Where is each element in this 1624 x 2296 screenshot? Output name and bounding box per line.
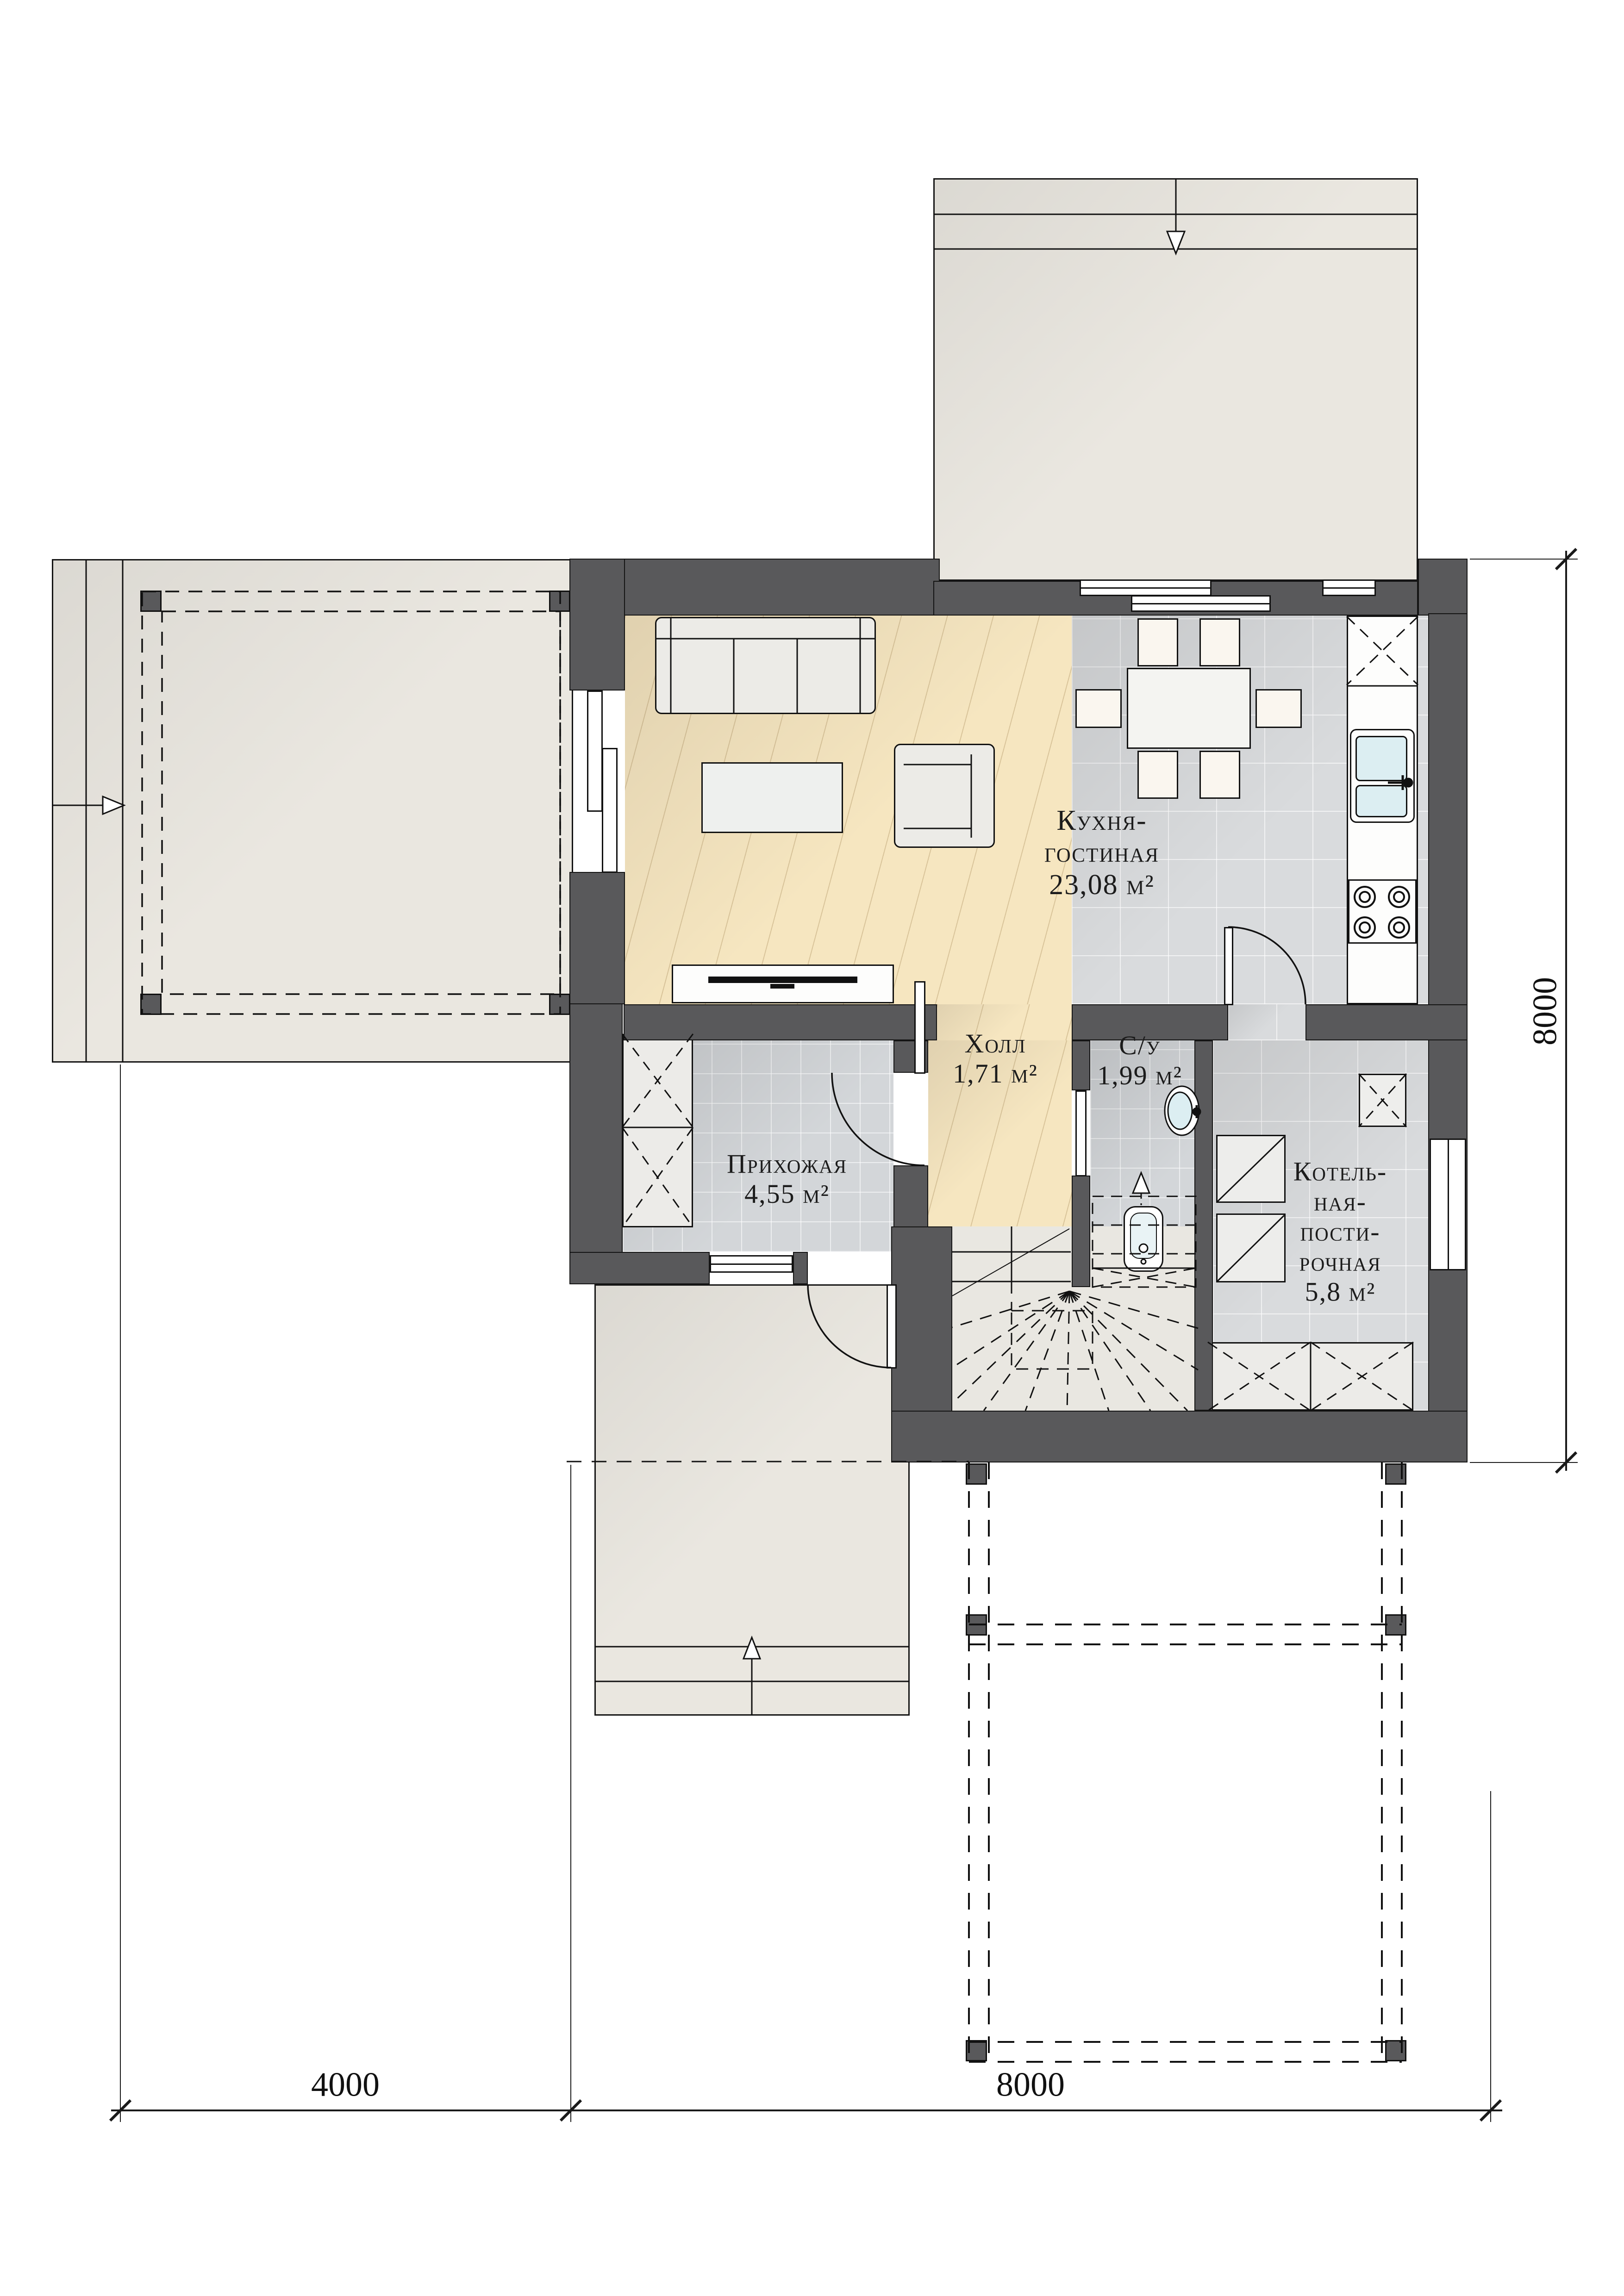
wall-left-lower [569,872,625,1004]
window-kitchen-2 [1131,595,1271,612]
toilet-bowl [1130,1213,1157,1259]
kitchen-sink-basin-1 [1355,736,1407,781]
window-kitchen-1 [1080,579,1212,596]
dining-chair-top-2 [1199,618,1240,666]
wall-top-living [569,559,940,616]
dimension-bottom-right: 8000 [996,2066,1065,2105]
pergola-post-5 [966,2040,987,2061]
terrace-post-2 [549,591,570,612]
boiler-cabinets-bottom [1208,1342,1413,1411]
wall-top-right-corner [1418,559,1468,616]
dining-chair-right [1255,689,1302,728]
boiler-cabinet-top [1359,1074,1406,1127]
wardrobe-entry [622,1034,693,1227]
dining-chair-top-1 [1137,618,1178,666]
wall-hall-bathroom-upper [1072,1040,1090,1090]
wall-hall-bathroom-lower [1072,1176,1090,1287]
wall-left-upper [569,559,625,691]
sliding-door-panel-1 [587,691,603,812]
pergola-lines [969,1462,1402,2063]
kitchen-sink-basin-2 [1355,785,1407,817]
room-label-entry: Прихожая 4,55 м² [727,1149,847,1209]
boiler-unit [1216,1213,1286,1282]
room-label-kitchen-living: Кухня- гостиная 23,08 м² [1044,805,1159,901]
hall-door-leaf [914,981,925,1074]
entrance-porch [594,1284,910,1716]
tv-console [672,964,894,1003]
stove [1348,879,1417,944]
kitchen-door-leaf [1224,927,1233,1005]
wall-kitchen-bottom-right [1305,1004,1468,1040]
floor-plan: Кухня- гостиная 23,08 м² Холл 1,71 м² С/… [0,0,1624,2296]
sofa [655,617,876,714]
wall-living-bottom [624,1004,937,1040]
dining-chair-bottom-1 [1137,751,1178,799]
wall-entry-bottom-2 [793,1252,808,1284]
wall-entry-left [569,1003,623,1284]
room-label-hall: Холл 1,71 м² [953,1029,1038,1089]
pergola-post-2 [1385,1463,1406,1485]
armchair [894,744,995,848]
pergola-post-6 [1385,2040,1406,2061]
terrace-post-1 [140,591,162,612]
window-boiler [1430,1139,1466,1270]
sliding-door-panel-2 [602,748,618,873]
entrance-door-leaf [887,1284,897,1369]
washing-machine [1216,1135,1286,1203]
room-label-bathroom: С/у 1,99 м² [1097,1031,1182,1091]
terrace-post-3 [140,994,162,1015]
wall-bottom [891,1411,1468,1462]
terrace-post-4 [549,994,570,1015]
pergola-post-1 [966,1463,987,1485]
terrace-top [933,178,1418,581]
dining-chair-bottom-2 [1199,751,1240,799]
dimension-bottom-left: 4000 [311,2066,380,2105]
bathroom-door-leaf [1075,1090,1087,1176]
pergola-post-3 [966,1614,987,1636]
dining-table [1127,668,1251,749]
coffee-table [701,762,843,833]
pergola-post-4 [1385,1614,1406,1636]
dimension-right: 8000 [1526,977,1565,1045]
wall-entry-bottom [569,1252,710,1284]
room-label-boiler-laundry: Котель- ная- пости- рочная 5,8 м² [1293,1157,1387,1307]
wall-bathroom-boiler [1194,1040,1213,1411]
dining-chair-left [1075,689,1122,728]
window-entry [710,1255,793,1273]
floor-kitchen-door-gap [1228,1004,1305,1040]
window-kitchen-3 [1322,579,1376,596]
terrace-left [52,559,573,1063]
